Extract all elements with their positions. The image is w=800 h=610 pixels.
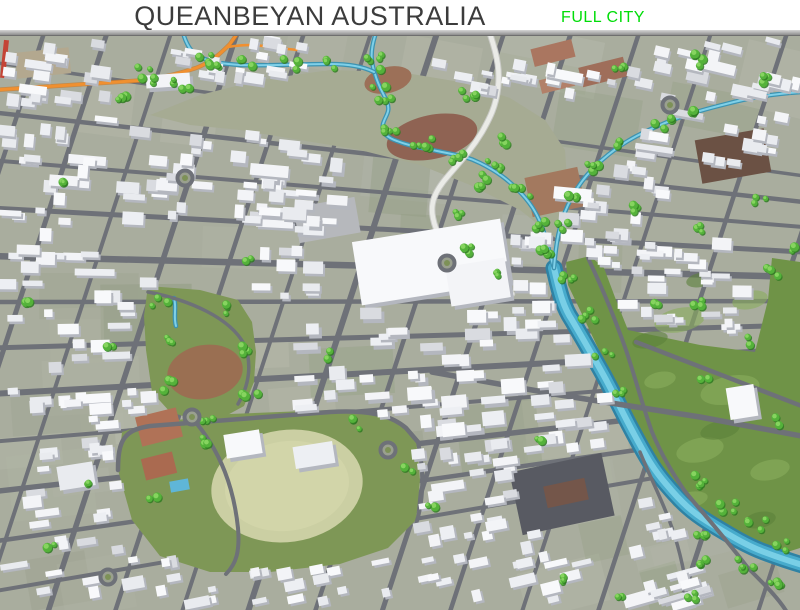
screenshot-root: QUEANBEYAN AUSTRALIA FULL CITY [0, 0, 800, 610]
building [0, 125, 17, 140]
building [726, 384, 762, 424]
title-bar: QUEANBEYAN AUSTRALIA FULL CITY [0, 0, 800, 30]
building [89, 65, 112, 83]
building [654, 314, 675, 325]
building [603, 246, 619, 257]
building [282, 207, 308, 224]
building [263, 179, 277, 192]
building [365, 391, 393, 404]
building [580, 210, 598, 223]
building [723, 307, 739, 316]
building [598, 257, 613, 268]
building [553, 334, 572, 345]
building [39, 228, 53, 244]
building [442, 422, 468, 440]
city-3d-render [0, 36, 800, 610]
building [664, 268, 682, 277]
building [647, 283, 668, 297]
building [75, 268, 117, 278]
building [755, 144, 769, 156]
building [303, 283, 322, 293]
building [555, 399, 577, 412]
building [420, 342, 446, 355]
building [140, 277, 159, 290]
building [360, 308, 384, 324]
city-render-svg [0, 36, 800, 610]
building [701, 152, 716, 166]
building [189, 134, 204, 149]
building [98, 90, 113, 105]
page-title: QUEANBEYAN AUSTRALIA [134, 1, 486, 32]
building [295, 404, 319, 415]
building [259, 207, 284, 220]
building [538, 320, 559, 330]
building [122, 211, 146, 228]
building [180, 153, 195, 169]
building [58, 218, 73, 228]
building [407, 386, 435, 405]
building [732, 285, 753, 300]
building [89, 402, 114, 417]
building [0, 279, 18, 292]
building [0, 210, 23, 219]
building [482, 410, 507, 429]
building [293, 342, 321, 354]
building [191, 181, 214, 193]
building [4, 52, 19, 66]
building [565, 353, 594, 369]
building [53, 192, 67, 208]
building [2, 67, 17, 80]
subtitle-badge: FULL CITY [561, 9, 645, 27]
building [618, 300, 640, 312]
building [655, 189, 672, 202]
building [294, 375, 318, 386]
building [596, 184, 612, 198]
building [268, 189, 286, 205]
building [21, 261, 41, 275]
building [276, 259, 297, 274]
building [140, 391, 159, 406]
building [123, 193, 147, 203]
building [22, 280, 44, 288]
building [7, 315, 24, 324]
building [295, 189, 319, 201]
building [322, 218, 339, 227]
building [481, 395, 509, 408]
building [631, 166, 648, 178]
building [244, 130, 261, 144]
building [252, 283, 273, 293]
building [613, 164, 631, 181]
building [58, 324, 81, 338]
building [512, 59, 528, 75]
building [513, 280, 530, 294]
building [6, 93, 22, 110]
building [587, 202, 601, 211]
building [701, 280, 715, 288]
building [64, 399, 83, 410]
building [303, 261, 325, 276]
building [81, 251, 101, 260]
building [751, 128, 769, 144]
building [336, 379, 357, 393]
building [237, 190, 256, 204]
building [439, 525, 458, 543]
building [108, 323, 133, 332]
building [16, 245, 41, 258]
building [117, 302, 135, 313]
building [605, 231, 621, 242]
building [243, 182, 259, 192]
building [23, 154, 42, 165]
building [32, 70, 52, 85]
building [148, 155, 169, 170]
building [532, 301, 552, 316]
building [531, 394, 552, 409]
building [701, 312, 722, 320]
building [129, 126, 153, 141]
building [94, 290, 113, 305]
building [712, 237, 734, 253]
building [102, 351, 132, 362]
building [467, 310, 488, 326]
building [542, 364, 562, 374]
building [712, 273, 732, 281]
building [326, 195, 351, 210]
building [530, 282, 548, 297]
building [501, 378, 528, 397]
building [72, 354, 90, 364]
building [388, 327, 409, 337]
